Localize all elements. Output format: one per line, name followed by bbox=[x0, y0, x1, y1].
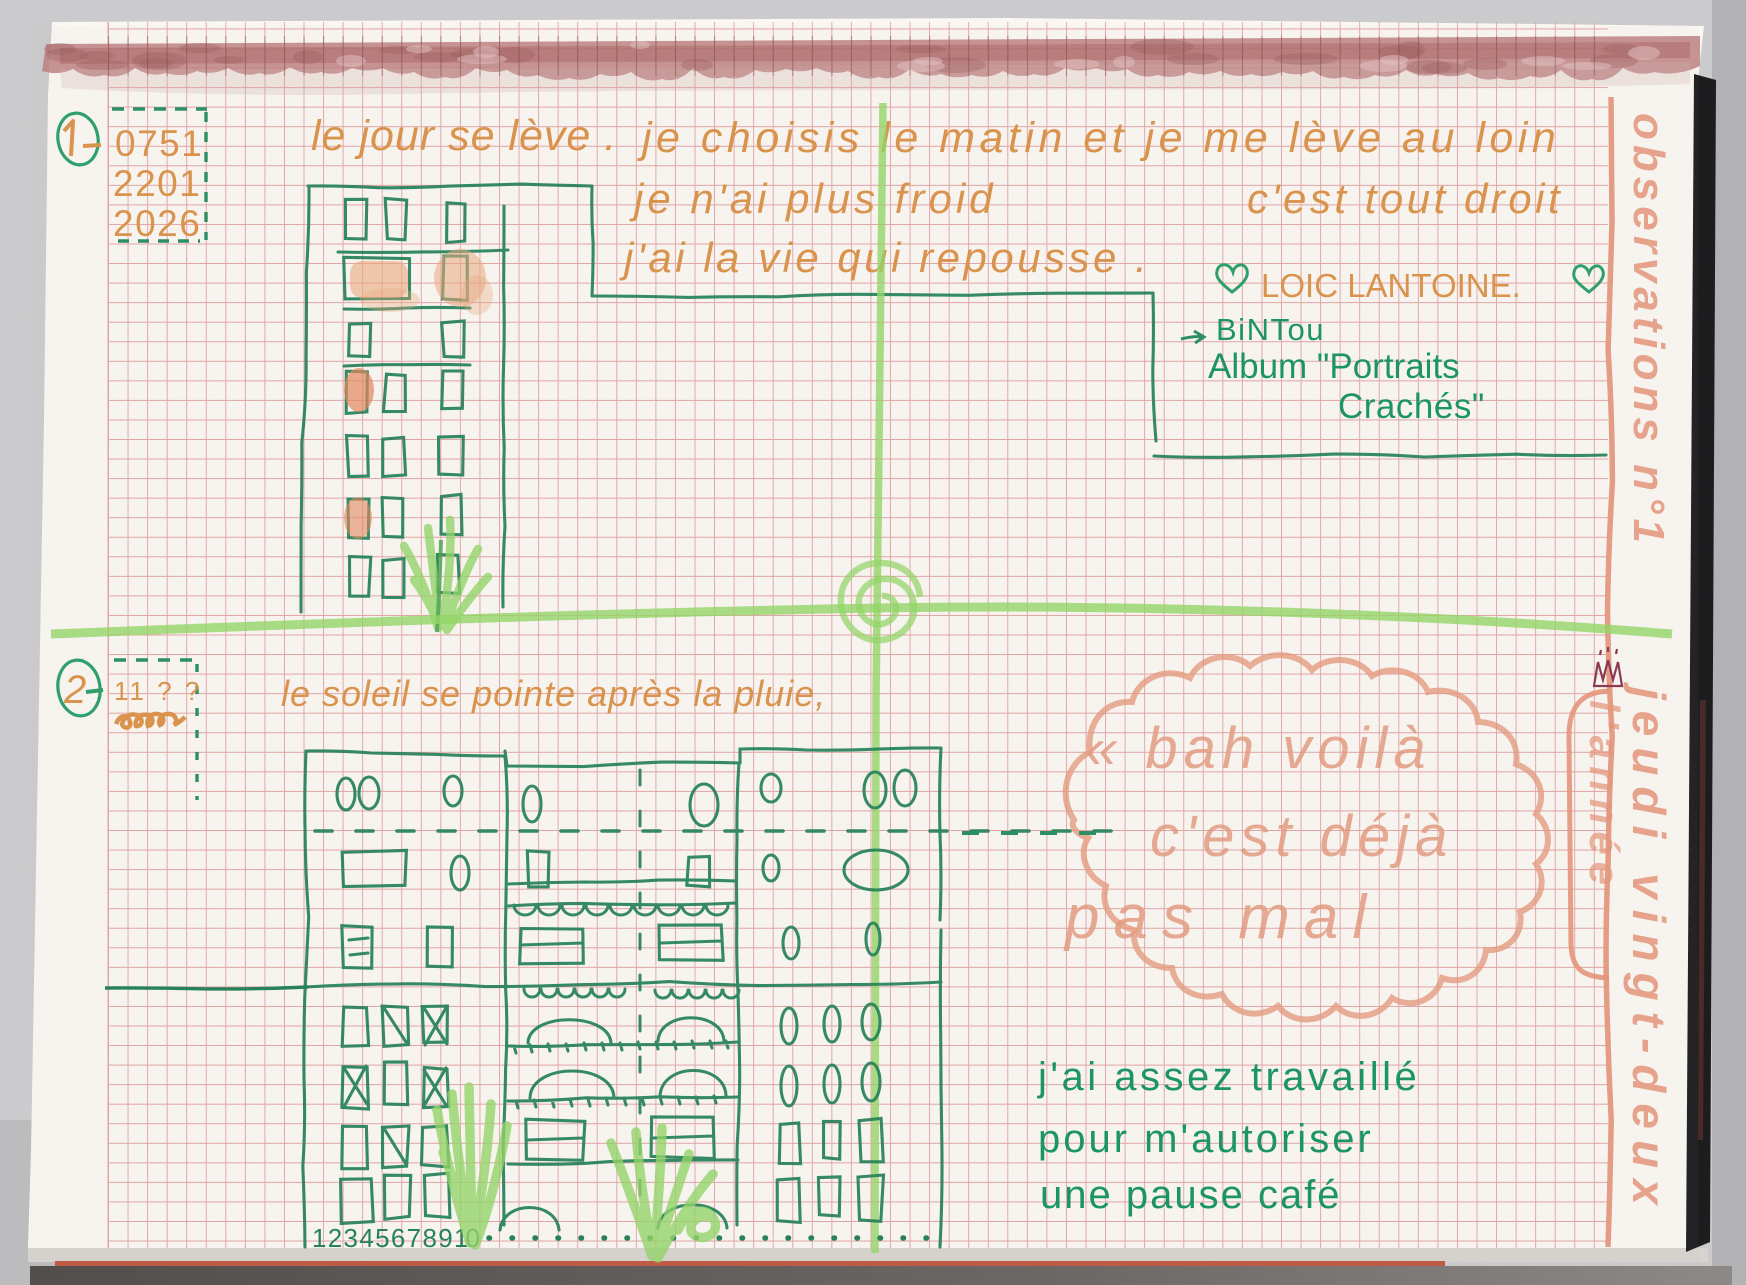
svg-text:LOIC LANTOINE.: LOIC LANTOINE. bbox=[1261, 267, 1521, 304]
svg-text:jeudi vingt-deux: jeudi vingt-deux bbox=[1623, 682, 1675, 1216]
svg-text:BiNTou: BiNTou bbox=[1216, 312, 1325, 347]
svg-text:c'est tout droit: c'est tout droit bbox=[1247, 175, 1563, 222]
svg-text:l'année: l'année bbox=[1581, 700, 1628, 892]
svg-text:je n'ai plus froid: je n'ai plus froid bbox=[629, 175, 997, 222]
svg-text:c'est déjà: c'est déjà bbox=[1150, 804, 1453, 869]
svg-text:pas mal: pas mal bbox=[1063, 883, 1380, 952]
svg-text:2026: 2026 bbox=[113, 203, 201, 244]
svg-text:une pause café: une pause café bbox=[1040, 1173, 1342, 1217]
svg-text:j'ai assez travaillé: j'ai assez travaillé bbox=[1037, 1055, 1420, 1099]
svg-text:2: 2 bbox=[63, 668, 86, 712]
svg-text:le jour se lève .: le jour se lève . bbox=[311, 112, 617, 160]
svg-text:observations n°1: observations n°1 bbox=[1624, 113, 1673, 548]
svg-text:je choisis le matin et je me l: je choisis le matin et je me lève au loi… bbox=[637, 114, 1560, 162]
svg-text:Album "Portraits: Album "Portraits bbox=[1208, 347, 1460, 386]
svg-text:pour m'autoriser: pour m'autoriser bbox=[1038, 1117, 1374, 1161]
svg-text:0751: 0751 bbox=[115, 123, 203, 164]
svg-text:2201: 2201 bbox=[113, 163, 201, 204]
svg-text:« bah voilà: « bah voilà bbox=[1085, 716, 1432, 781]
svg-text:1 2 3 4 5 6 7 8 9 10: 1 2 3 4 5 6 7 8 9 10 bbox=[312, 1223, 480, 1253]
svg-text:11 ? ?: 11 ? ? bbox=[114, 676, 202, 706]
svg-text:le soleil se pointe après la p: le soleil se pointe après la pluie, bbox=[281, 673, 826, 714]
svg-text:Crachés": Crachés" bbox=[1338, 387, 1485, 426]
